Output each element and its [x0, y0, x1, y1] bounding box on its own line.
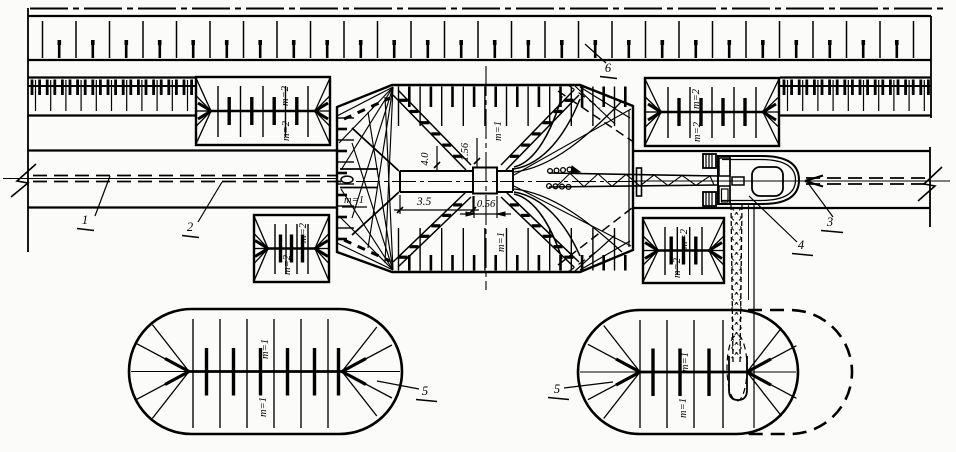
- svg-text:m=1: m=1: [678, 398, 689, 418]
- svg-text:1.56: 1.56: [460, 142, 471, 161]
- svg-text:0.56: 0.56: [477, 199, 496, 210]
- svg-text:2: 2: [187, 220, 193, 234]
- svg-text:5: 5: [554, 382, 560, 396]
- svg-text:4: 4: [798, 238, 804, 252]
- svg-text:m=2: m=2: [281, 120, 292, 141]
- svg-text:6: 6: [605, 61, 612, 75]
- svg-text:5: 5: [422, 384, 428, 398]
- svg-text:4.0: 4.0: [420, 152, 431, 166]
- svg-text:m=2: m=2: [692, 121, 703, 142]
- svg-text:m=1: m=1: [496, 232, 507, 252]
- svg-text:m=1: m=1: [258, 397, 269, 417]
- svg-text:1: 1: [82, 213, 88, 227]
- svg-text:m=2: m=2: [282, 254, 293, 275]
- svg-text:m=2: m=2: [679, 228, 690, 249]
- svg-text:3.5: 3.5: [416, 196, 432, 208]
- svg-text:m=2: m=2: [280, 85, 291, 106]
- svg-text:m=1: m=1: [260, 339, 271, 359]
- svg-text:m=2: m=2: [672, 257, 683, 278]
- svg-text:m=1: m=1: [680, 352, 691, 372]
- svg-text:3: 3: [826, 215, 833, 229]
- svg-text:m=2: m=2: [298, 222, 309, 243]
- svg-text:m=1: m=1: [493, 121, 504, 141]
- svg-text:m=1: m=1: [344, 195, 364, 206]
- svg-text:m=2: m=2: [691, 88, 702, 109]
